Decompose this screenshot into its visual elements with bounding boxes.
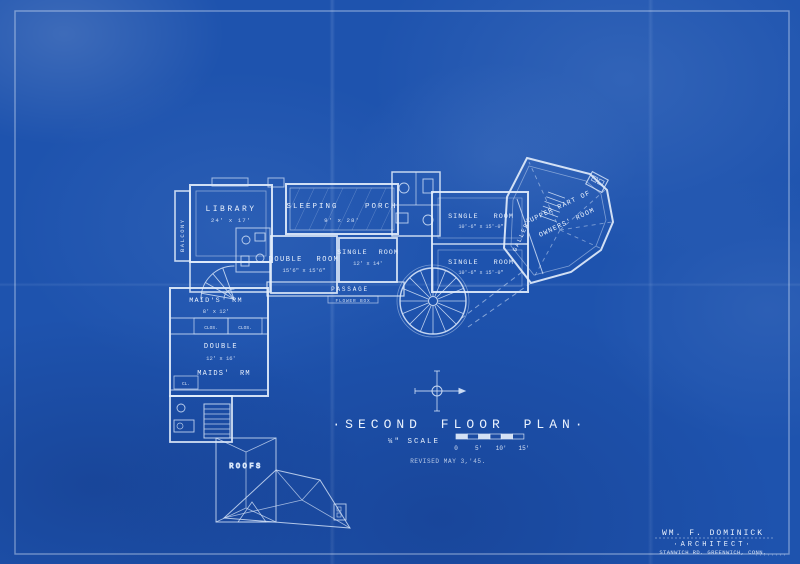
single-room-center-label: SINGLE ROOM [337, 249, 399, 257]
single-room-lower-label: SINGLE ROOM [448, 259, 514, 267]
drawing-title: ·SECOND FLOOR PLAN· [332, 417, 587, 432]
right-block: SINGLE ROOM 10'-6" x 15'-0" SINGLE ROOM … [432, 192, 528, 292]
passage-label: PASSAGE [331, 286, 369, 293]
double-maids-label-2: MAIDS' RM [197, 370, 251, 378]
single-room-upper-dims: 10'-6" x 15'-0" [458, 224, 503, 230]
scale-label: ¼" SCALE [388, 438, 440, 446]
blueprint-drawing: BALCONY LIBRARY 24' x 17' SLEEPING PORCH… [0, 0, 800, 564]
fixture [399, 183, 409, 193]
compass-arrow [459, 389, 465, 394]
double-maids-label: DOUBLE [204, 343, 238, 351]
fixture [423, 179, 433, 193]
roof-poly [224, 470, 350, 528]
double-maids-dims: 12' x 16' [206, 355, 236, 362]
sleeping-porch-label: SLEEPING PORCH [286, 203, 397, 211]
wing-connector [462, 272, 531, 327]
flower-box-label: FLOWER BOX [335, 298, 370, 304]
maids-room-upper-label: MAID'S RM [189, 297, 243, 305]
curved-stair [201, 266, 234, 299]
right-block-outline [432, 192, 528, 292]
sleeping-porch-dims: 9' x 28' [324, 217, 360, 224]
library-label: LIBRARY [205, 205, 256, 214]
scale-tick-15: 15' [518, 445, 529, 452]
title-block: ·SECOND FLOOR PLAN· ¼" SCALE 0 5' 10' 15… [332, 417, 587, 465]
balcony-label: BALCONY [179, 218, 186, 252]
single-room-lower-dims: 10'-6" x 15'-0" [458, 270, 503, 276]
roofs-label: ROOFS [229, 463, 263, 471]
closet-right-label: CLOS. [238, 325, 252, 331]
owners-wing: GALLERY UPPER PART OF OWNERS' ROOM [462, 158, 613, 327]
double-room-dims: 15'6" x 15'6" [283, 267, 326, 274]
scale-bar: 0 5' 10' 15' [454, 434, 529, 452]
closet-left-label: CLOS. [204, 325, 218, 331]
maids-wing: MAID'S RM 8' x 12' CLOS. CLOS. DOUBLE 12… [170, 288, 268, 442]
fixture [242, 236, 250, 244]
scale-tick-10: 10' [496, 445, 507, 452]
architect-name: WM. F. DOMINICK [662, 529, 764, 538]
architect-stamp: WM. F. DOMINICK ·ARCHITECT· STANWICH RD.… [655, 529, 788, 556]
single-room-upper-label: SINGLE ROOM [448, 213, 514, 221]
service-stair [204, 404, 230, 438]
double-room-label: DOUBLE ROOM [269, 256, 340, 264]
compass-icon [415, 371, 465, 411]
library-dims: 24' x 17' [211, 217, 251, 224]
scale-tick-0: 0 [454, 445, 458, 452]
double-room-outline [271, 236, 337, 293]
fixture [255, 233, 265, 241]
owners-wing-outline [504, 158, 613, 283]
maids-bath-stairs [174, 404, 230, 438]
architect-address: STANWICH RD. GREENWICH, CONN. [659, 549, 766, 556]
architect-title: ·ARCHITECT· [673, 541, 752, 549]
fixture [177, 404, 185, 412]
revised-note: REVISED MAY 3,'45. [410, 458, 486, 465]
closet-small-label: CL. [182, 381, 190, 387]
scale-tick-5: 5' [475, 445, 482, 452]
top-center-block: SLEEPING PORCH 9' x 28' DOUBLE ROOM 15'6… [267, 172, 440, 304]
fixture [256, 254, 264, 262]
maids-room-upper-dims: 8' x 12' [203, 308, 229, 315]
blueprint-sheet: BALCONY LIBRARY 24' x 17' SLEEPING PORCH… [0, 0, 800, 564]
single-room-center-dims: 12' x 14' [353, 260, 383, 267]
library-wing: BALCONY LIBRARY 24' x 17' [175, 178, 284, 299]
roofs: ROOFS [216, 438, 350, 528]
